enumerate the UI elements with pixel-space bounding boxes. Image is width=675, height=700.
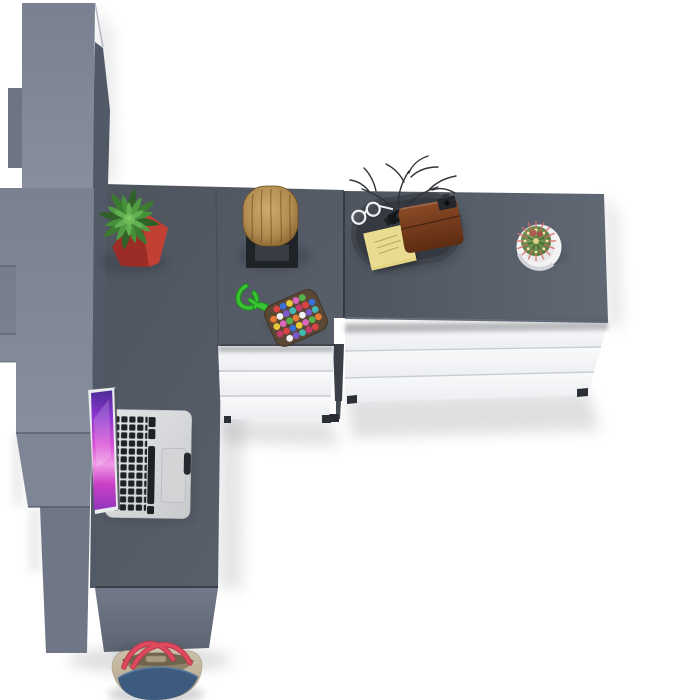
sideboard-drawer-unit [345,321,608,404]
shadow-wardrobe-step-2 [28,508,42,572]
laptop-key [148,429,155,439]
drawer-front [219,372,333,396]
drawer-front [220,397,331,419]
stool-frame-opening [255,245,289,261]
cactus-bud [537,231,543,237]
drawer-top-shadow [218,346,334,352]
phone-beside-laptop [184,453,191,475]
wardrobe-step-1 [16,433,92,507]
valet-tray [347,156,471,278]
desk-drawer-unit [218,346,334,423]
wardrobe-door-inset [0,266,16,334]
wardrobe-step-2 [40,507,90,653]
laptop-key [147,506,154,514]
drawer-front [345,348,601,378]
cactus-plant [516,221,556,261]
cabinet-foot [322,415,331,423]
cabinet-foot [224,416,231,423]
laptop-key [148,417,155,427]
laptop-spacebar [147,446,155,504]
divider-side [333,344,344,401]
cactus-bud [530,230,537,237]
wardrobe-door-handle [8,88,22,168]
cactus-crown [533,238,539,244]
wardrobe [0,3,110,653]
cabinet-foot [347,395,357,404]
cabinet-foot [577,388,588,397]
bag-inner-pocket [146,656,166,662]
laptop-trackpad [161,448,186,502]
wardrobe-top-section [22,3,95,188]
office-top-view [0,0,675,700]
scene-svg [0,0,675,700]
